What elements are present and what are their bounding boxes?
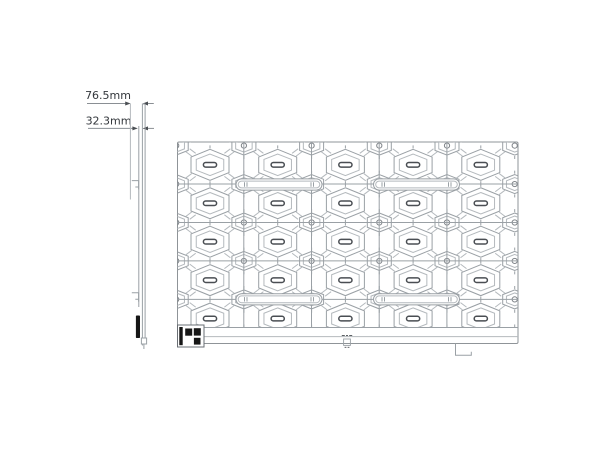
- connector-panel: [178, 325, 205, 347]
- mounting-slot: [236, 179, 322, 190]
- dimension-annotations: 76.5mm 32.3mm: [85, 89, 154, 130]
- dimension-label-mount-depth: 32.3mm: [86, 115, 132, 128]
- mounting-slot: [236, 294, 322, 305]
- side-profile-view: [130, 104, 146, 350]
- cable-hook: [456, 344, 472, 356]
- mounting-slot: [374, 179, 460, 190]
- mounting-slot: [374, 294, 460, 305]
- dimension-label-total-depth: 76.5mm: [85, 89, 131, 102]
- drawing-svg: 76.5mm 32.3mm: [0, 0, 610, 450]
- rear-panel-view: [157, 132, 535, 355]
- technical-drawing-canvas: 76.5mm 32.3mm: [0, 0, 610, 450]
